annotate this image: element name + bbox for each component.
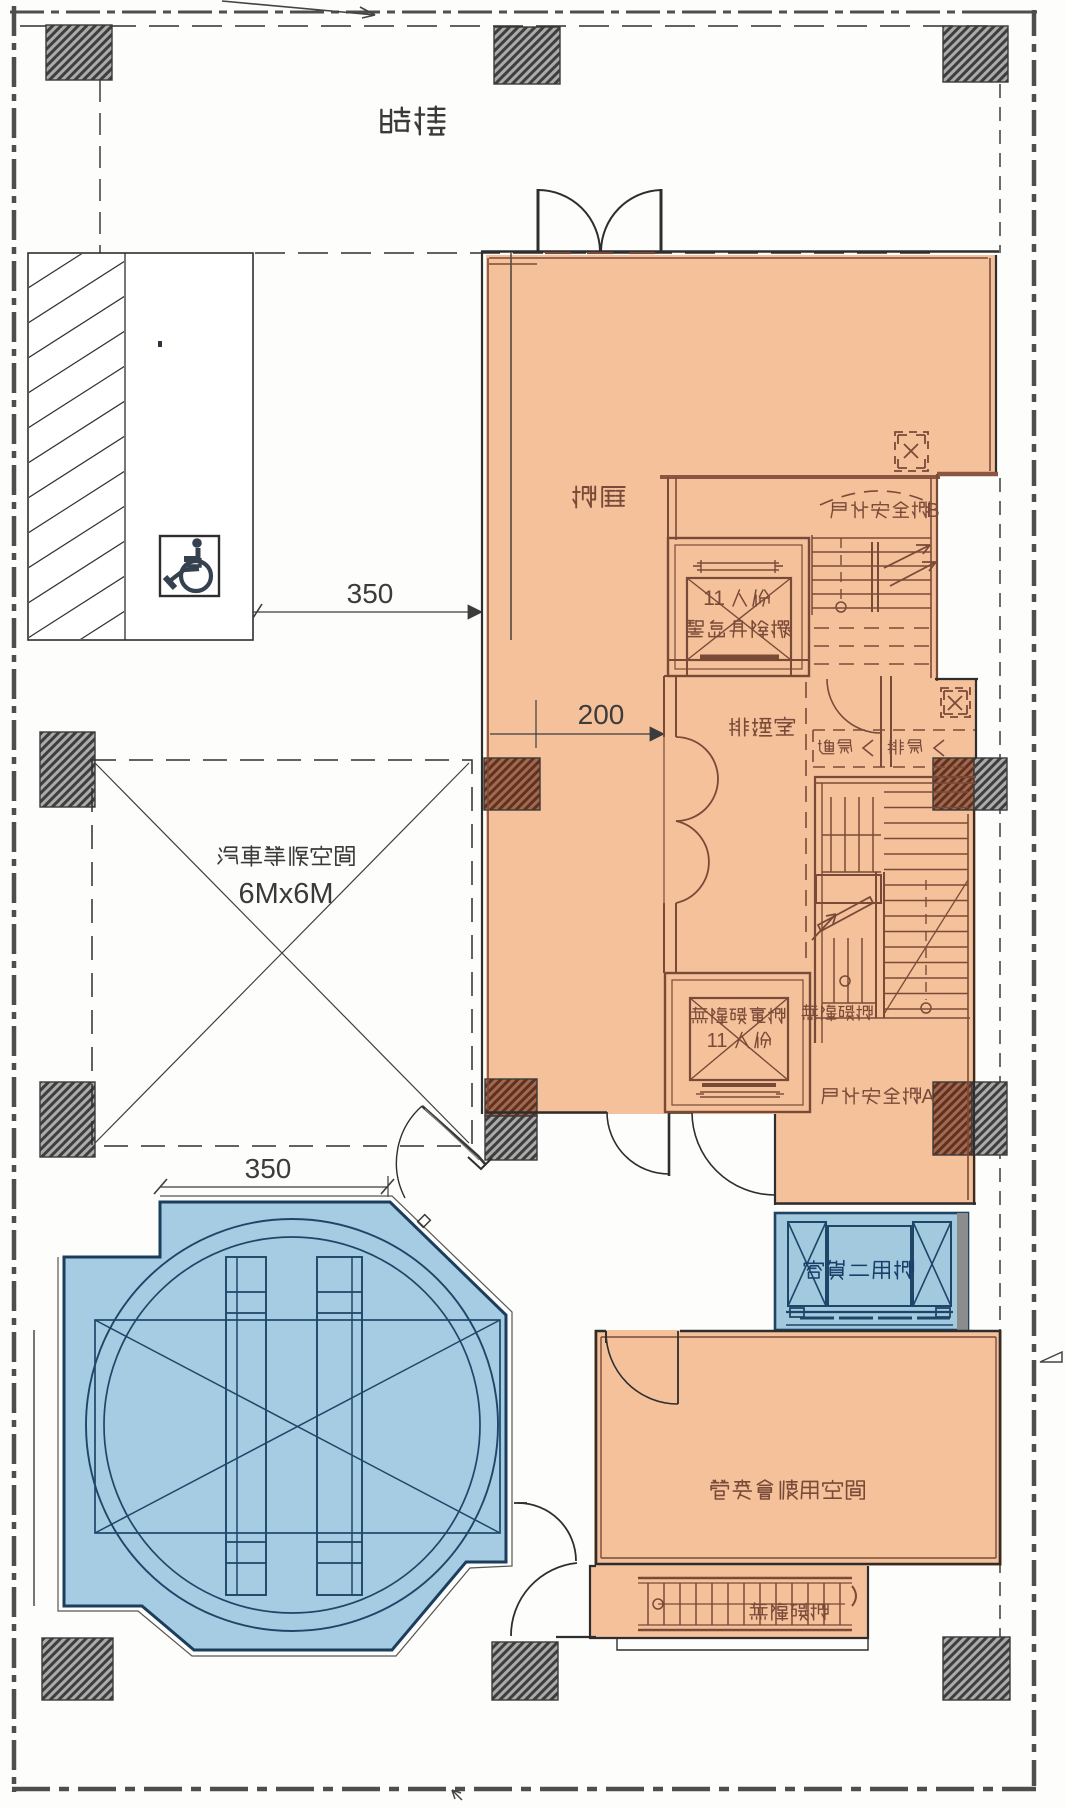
svg-text:350: 350 — [347, 578, 394, 609]
svg-text:200: 200 — [578, 699, 625, 730]
svg-text:11: 11 — [703, 587, 725, 610]
svg-text:A: A — [921, 1086, 935, 1108]
svg-text:350: 350 — [245, 1153, 292, 1184]
svg-text:6Mx6M: 6Mx6M — [238, 878, 333, 910]
svg-text:B: B — [926, 500, 939, 522]
svg-text:11: 11 — [707, 1030, 728, 1052]
